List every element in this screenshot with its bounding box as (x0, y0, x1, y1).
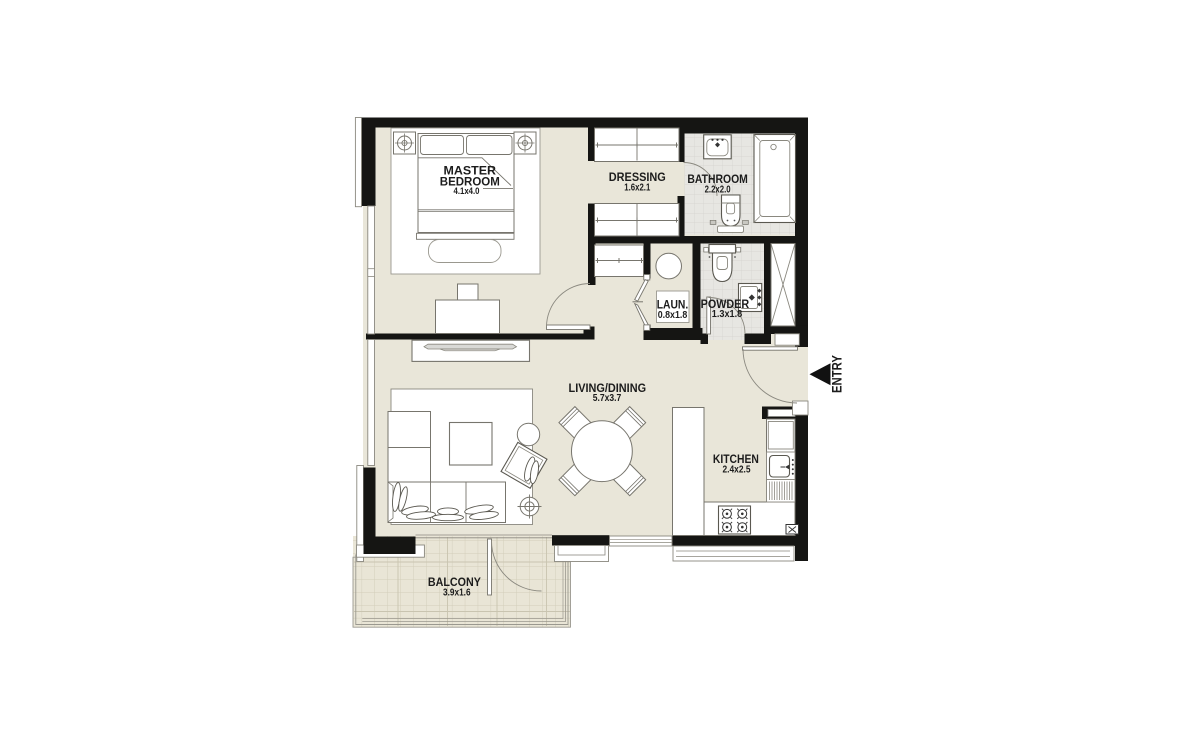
svg-text:ENTRY: ENTRY (830, 355, 845, 393)
svg-text:2.4x2.5: 2.4x2.5 (723, 465, 751, 476)
svg-text:1.3x1.8: 1.3x1.8 (712, 309, 743, 320)
svg-text:1.6x2.1: 1.6x2.1 (624, 183, 650, 194)
svg-text:3.9x1.6: 3.9x1.6 (443, 588, 471, 599)
svg-text:2.2x2.0: 2.2x2.0 (705, 185, 731, 196)
svg-text:5.7x3.7: 5.7x3.7 (593, 393, 622, 404)
svg-text:4.1x4.0: 4.1x4.0 (454, 186, 480, 197)
svg-text:0.8x1.8: 0.8x1.8 (658, 310, 688, 321)
